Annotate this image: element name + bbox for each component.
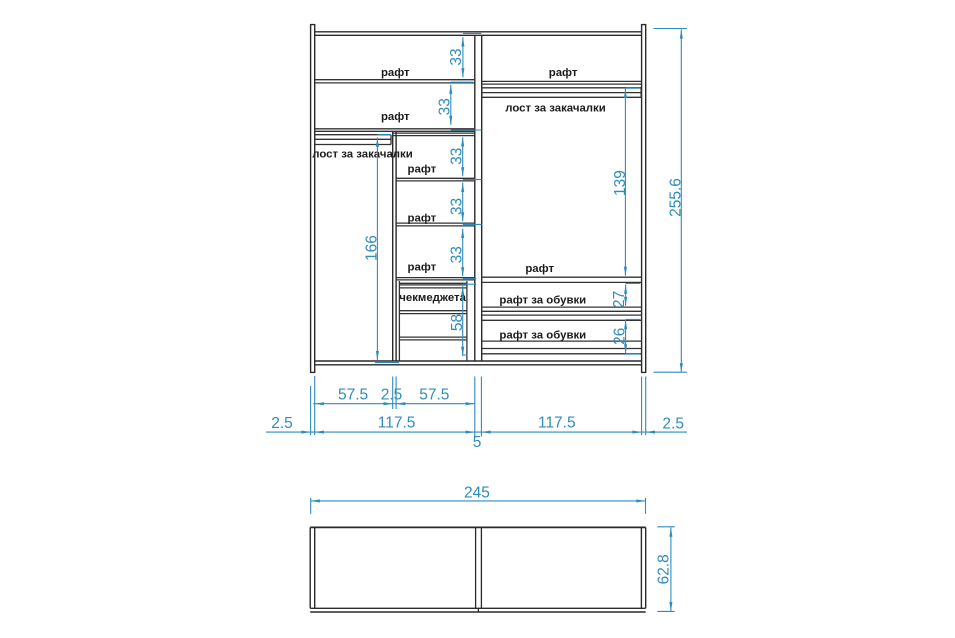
svg-text:рафт: рафт xyxy=(381,111,410,123)
svg-text:33: 33 xyxy=(449,246,466,263)
svg-text:рафт: рафт xyxy=(381,67,410,79)
svg-text:33: 33 xyxy=(448,48,465,65)
svg-text:2.5: 2.5 xyxy=(271,415,293,432)
svg-text:рафт: рафт xyxy=(408,262,437,274)
svg-text:рафт: рафт xyxy=(549,67,578,79)
svg-text:166: 166 xyxy=(364,235,381,261)
svg-text:57.5: 57.5 xyxy=(419,386,449,403)
svg-text:рафт: рафт xyxy=(408,213,437,225)
svg-text:117.5: 117.5 xyxy=(378,414,416,431)
svg-text:рафт: рафт xyxy=(525,263,554,275)
svg-text:2.5: 2.5 xyxy=(662,416,684,433)
svg-text:27: 27 xyxy=(611,291,628,308)
svg-text:лост за закачалки: лост за закачалки xyxy=(505,103,605,115)
svg-text:245: 245 xyxy=(464,484,490,501)
svg-text:5: 5 xyxy=(473,434,482,451)
svg-text:57.5: 57.5 xyxy=(338,386,368,403)
svg-text:лост за закачалки: лост за закачалки xyxy=(312,148,412,160)
svg-text:62.8: 62.8 xyxy=(656,554,673,584)
svg-text:2.5: 2.5 xyxy=(381,386,403,403)
svg-text:255.6: 255.6 xyxy=(667,178,684,217)
svg-text:139: 139 xyxy=(612,170,629,196)
svg-text:26: 26 xyxy=(612,328,629,345)
svg-text:33: 33 xyxy=(436,98,453,115)
svg-text:117.5: 117.5 xyxy=(538,414,576,431)
svg-text:чекмеджета: чекмеджета xyxy=(399,292,466,304)
svg-text:рафт за обувки: рафт за обувки xyxy=(499,294,586,306)
svg-text:33: 33 xyxy=(449,148,466,165)
svg-text:33: 33 xyxy=(449,198,466,215)
svg-text:рафт за обувки: рафт за обувки xyxy=(499,330,586,342)
svg-text:рафт: рафт xyxy=(408,164,437,176)
svg-text:58: 58 xyxy=(449,314,466,331)
